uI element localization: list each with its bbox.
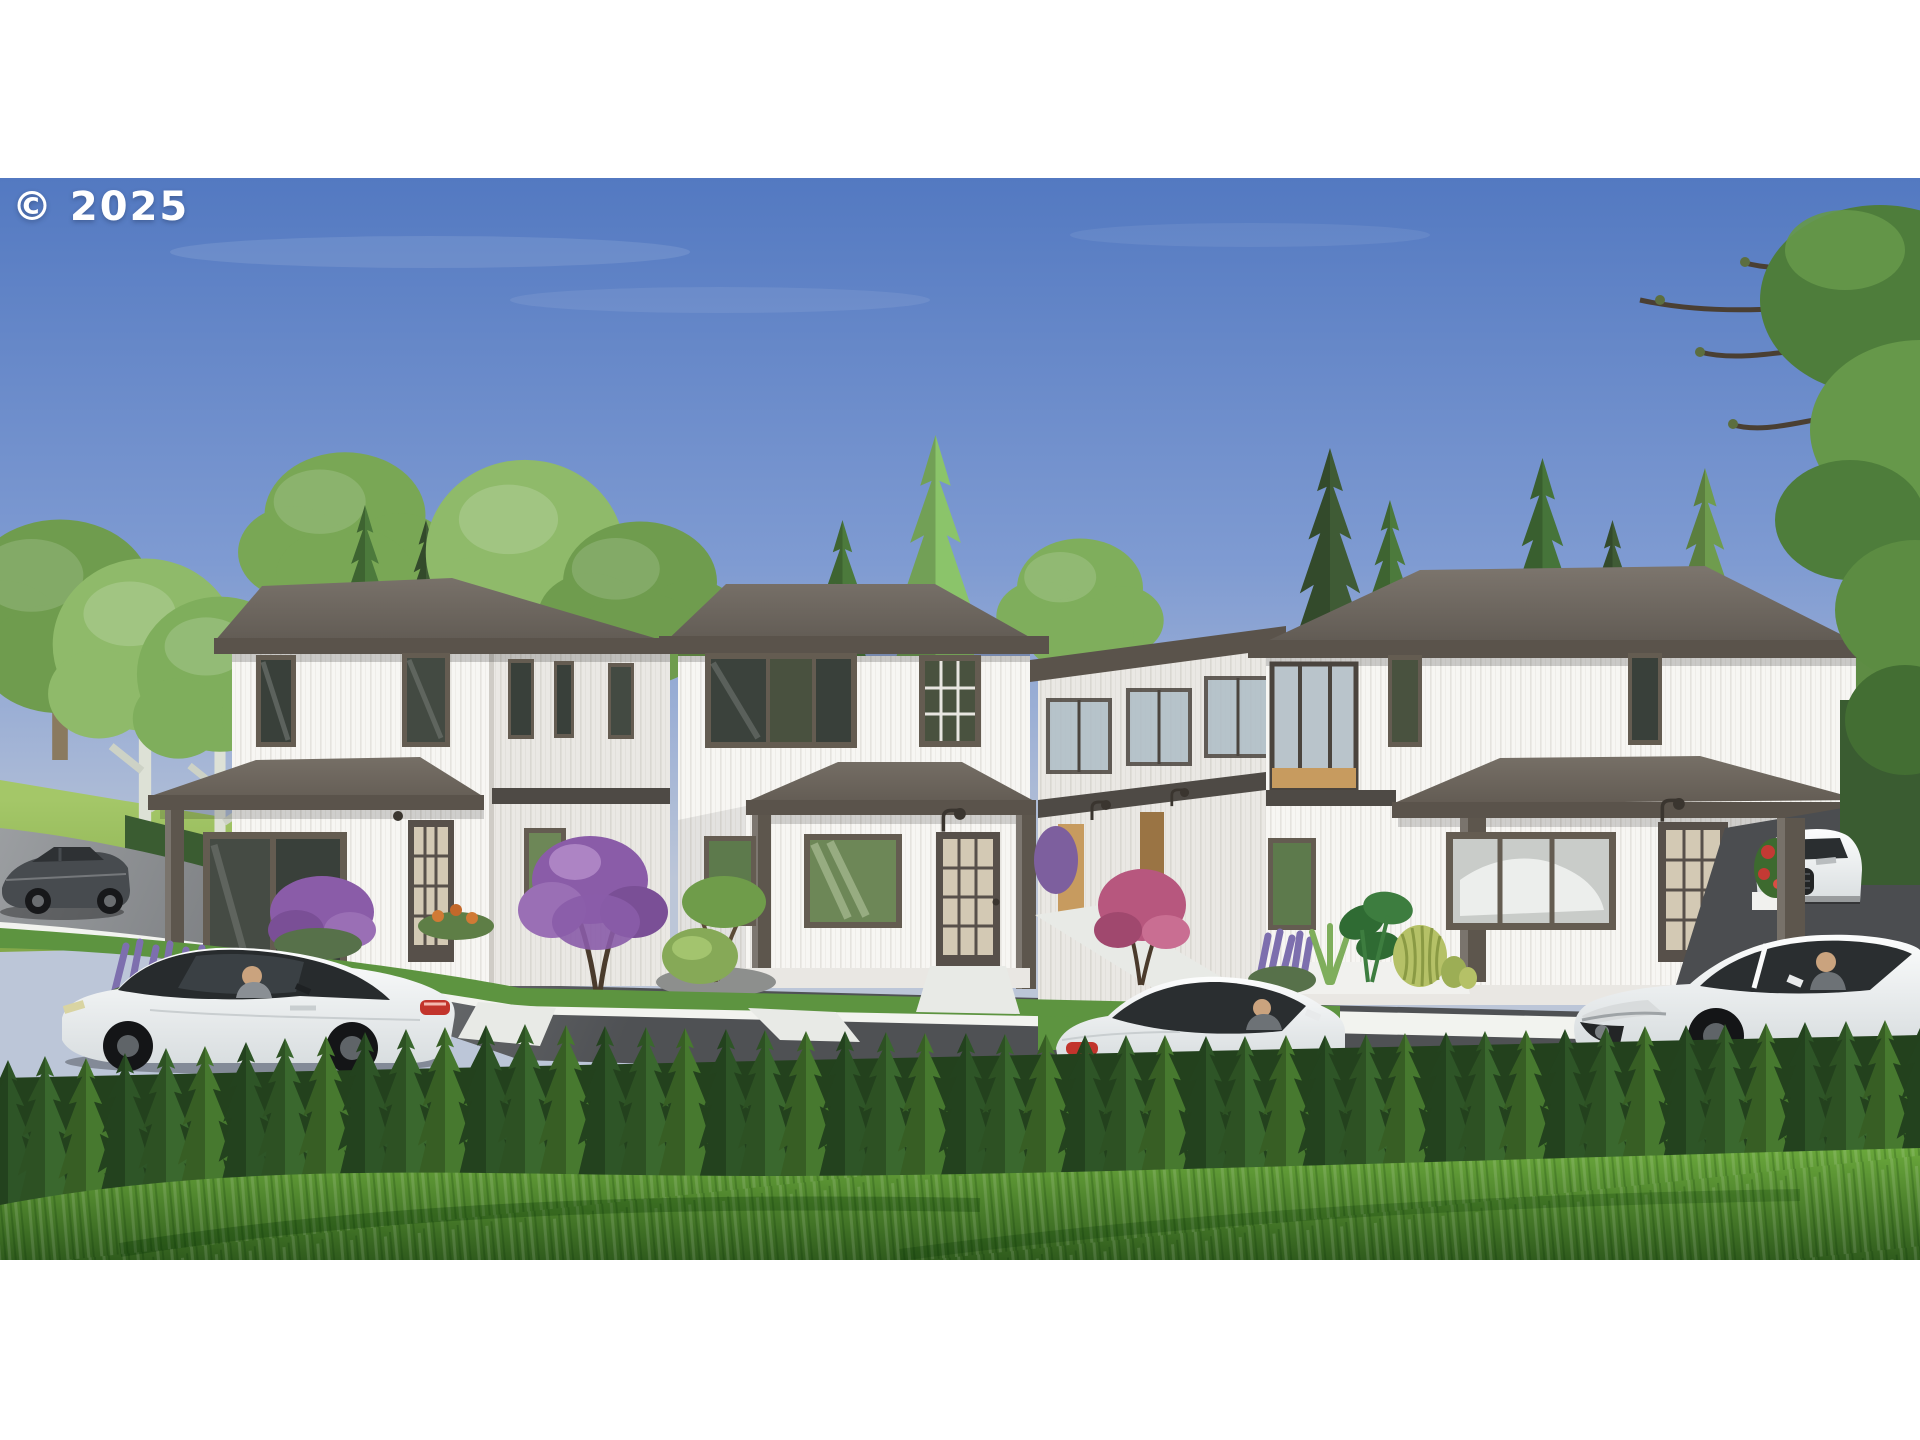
corner-balcony [1272,664,1356,790]
purple-bush-left [268,876,376,960]
walkway [916,966,1020,1014]
floor-band [1266,790,1396,806]
letterbox-bottom [0,1260,1920,1440]
barrel-cactus [1393,925,1447,987]
floor-band [492,788,670,804]
middle-house [656,584,1049,997]
middle-house-upper-windows [705,653,981,748]
roof-fascia [1248,640,1872,658]
roof-fascia [214,638,668,654]
cloud [170,236,690,268]
taillight [420,1000,450,1015]
purple-shrub [1034,826,1078,894]
side-mirror [1788,978,1802,984]
roof-fascia [659,636,1049,654]
ornamental-tree [682,876,766,928]
cloud [510,287,930,313]
copyright-watermark: © 2025 [12,184,189,230]
porch-sconce [393,811,403,821]
rendered-photo: © 2025 [0,0,1920,1440]
driver-head [1816,952,1836,972]
cloud [1070,223,1430,247]
letterbox-top [0,0,1920,178]
balcony-wood-band [1272,768,1356,788]
